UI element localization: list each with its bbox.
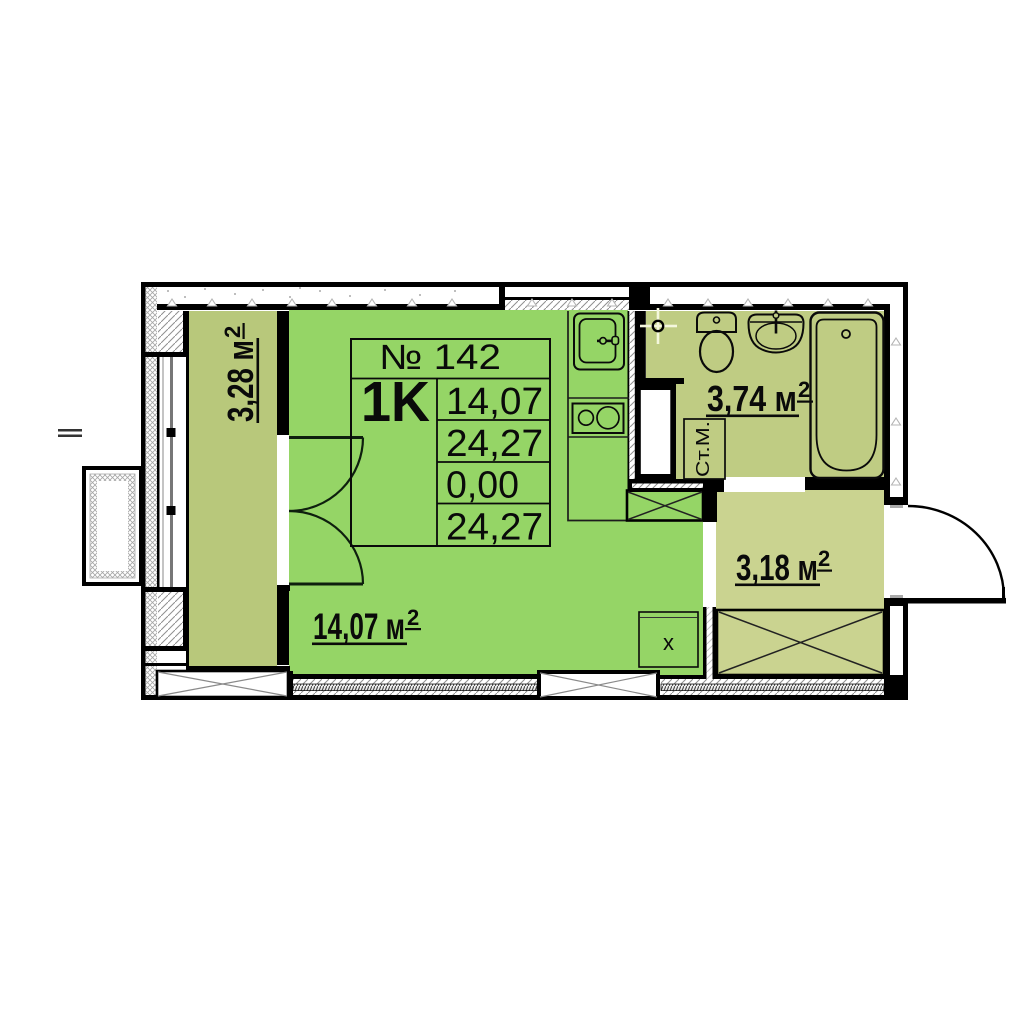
svg-text:2: 2 — [818, 546, 830, 571]
svg-text:24,27: 24,27 — [446, 507, 543, 549]
svg-text:1K: 1K — [361, 370, 430, 434]
svg-text:3,28 м: 3,28 м — [220, 340, 261, 422]
svg-text:24,27: 24,27 — [446, 423, 543, 465]
svg-text:14,07: 14,07 — [446, 381, 543, 423]
svg-text:2: 2 — [220, 326, 245, 338]
svg-text:Ст.М.: Ст.М. — [693, 421, 713, 477]
svg-text:2: 2 — [798, 377, 810, 402]
svg-text:2: 2 — [407, 605, 419, 630]
svg-text:3,18 м: 3,18 м — [736, 547, 818, 588]
svg-text:14,07 м: 14,07 м — [313, 606, 405, 647]
svg-text:x: x — [663, 630, 674, 655]
svg-text:3,74 м: 3,74 м — [707, 378, 797, 419]
svg-text:0,00: 0,00 — [446, 465, 519, 507]
